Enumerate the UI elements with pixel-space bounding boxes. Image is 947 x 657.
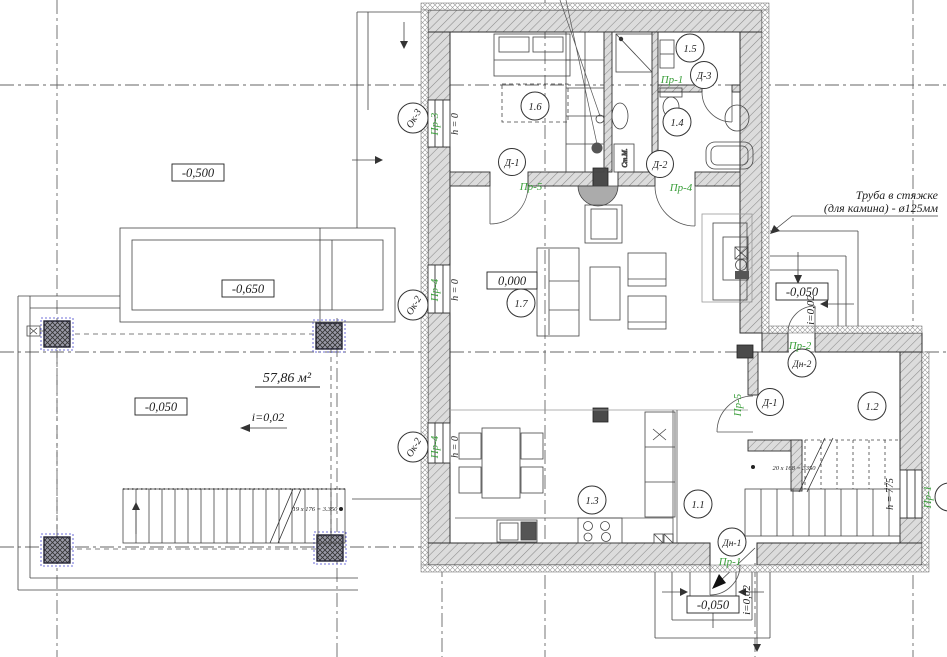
opening-tag-pr1-storage: Пр-1 [660, 74, 684, 86]
washing-machine: Ст.М. [614, 144, 634, 172]
wall-left-pier [428, 32, 450, 100]
burner [584, 533, 592, 541]
opening-tag-pr1-window-right: Пр-1 [922, 486, 934, 510]
window-tag-ok2-bottom: Ок-2 [398, 432, 428, 462]
elevation-entry-porch: -0,050 [687, 596, 739, 613]
room-tag-1-1: 1.1 [684, 490, 712, 518]
vent-shafts [593, 168, 753, 422]
washbasin [612, 103, 628, 129]
door-tag-d2-bathroom: Д-2 [647, 151, 674, 178]
tv-stand [585, 205, 622, 243]
door-number: Дн-2 [792, 360, 812, 370]
terrace-stairs-risers [136, 489, 331, 543]
burner [601, 522, 610, 531]
window-tag-ok3: Ок-3 [398, 103, 428, 133]
insulation-strip [421, 3, 769, 10]
right-porch-slope-label: i=0,02 [805, 295, 817, 325]
elevation-terrace: -0,050 [135, 398, 187, 415]
opening-tag-pr3-window-top: Пр-3 [429, 112, 441, 136]
arrow-head [240, 424, 250, 432]
window-tag-ok2-mid: Ок-2 [398, 290, 428, 320]
tall-cabinet [645, 412, 675, 517]
dining-table [482, 428, 520, 498]
stair-formula-dot [751, 465, 755, 469]
tv-inner [591, 209, 617, 239]
terrace-canopy-dashed-outline [57, 334, 331, 549]
vent-grille-diagonals [654, 534, 673, 543]
door-tag-dn2-porch: Дн-2 [788, 349, 816, 377]
insulation-strip [421, 565, 929, 572]
stair-risers-lower [761, 489, 889, 536]
cabinet-shelves [645, 447, 675, 482]
internal-stair-formula: 20 х 168 = 3350 [772, 465, 816, 472]
armchair-outline [628, 253, 666, 286]
door-tag-d3-storage: Д-3 [691, 62, 718, 89]
room-number: 1.1 [691, 500, 704, 511]
terrace-area-label: 57,86 м² [263, 371, 312, 386]
elevation-value: -0,050 [697, 598, 730, 612]
room-number: 1.2 [865, 402, 879, 413]
elevation-right-porch: -0,050 [776, 283, 828, 300]
door-swing-arc [702, 92, 732, 122]
vent-shaft [593, 168, 608, 186]
shower-tray [616, 34, 652, 72]
insulation-strip [762, 10, 769, 333]
burner [602, 533, 611, 542]
room-number: 1.5 [683, 44, 696, 55]
height-label-h775: h = 775 [885, 478, 896, 510]
iwall [604, 32, 612, 172]
room-tag-1-2: 1.2 [858, 392, 886, 420]
room-tag-1-6: 1.6 [521, 92, 549, 120]
terrace-columns [27, 318, 346, 566]
arrow-head [132, 502, 140, 510]
wall-left-pier [428, 313, 450, 423]
wall-bottom [428, 543, 710, 565]
sofa-outline [537, 248, 579, 336]
plumbing-stack-filled [592, 143, 603, 154]
iwall [658, 85, 702, 92]
ramp-outer [120, 228, 395, 322]
terrace-stairs [123, 489, 345, 543]
door-fan-corridor [578, 186, 618, 206]
window-tag-right-partial [935, 483, 947, 511]
entry-porch-slope-label: i=0,02 [741, 585, 753, 615]
internal-stairs [745, 438, 900, 536]
insulation-strip [421, 10, 428, 565]
door-number: Д-3 [696, 71, 712, 82]
opening-tag-pr2-porch: Пр-2 [788, 340, 812, 352]
chair [521, 467, 543, 493]
height-label-h0-top: h = 0 [450, 113, 461, 135]
kitchen-sink-unit [497, 520, 537, 542]
opening-tag-pr4-bathroom: Пр-4 [669, 182, 693, 194]
anchor-symbol [27, 326, 44, 336]
column [316, 323, 342, 349]
elevation-value: -0,500 [182, 166, 215, 180]
wall-right-upper [740, 32, 762, 333]
wall-porch-segment [762, 333, 788, 352]
door-number: Д-2 [652, 160, 668, 171]
terrace-slope-label: i=0,02 [252, 410, 284, 424]
opening-tag-pr5-bedroom: Пр-5 [519, 181, 543, 193]
cabinet-cross-mark [653, 429, 666, 440]
door-number: Дн-1 [722, 539, 742, 549]
window-right-wing [900, 470, 922, 518]
iwall [748, 352, 758, 395]
door-tag-d1-bedroom: Д-1 [499, 149, 526, 176]
arrow-head [680, 588, 688, 596]
sink-bowl [500, 523, 518, 540]
arrow-head [400, 41, 408, 49]
wall-wing-right [900, 352, 922, 470]
door-tag-dn1-entry: Дн-1 [718, 528, 746, 556]
elevation-floor: 0,000 [487, 272, 537, 289]
burner [584, 522, 593, 531]
room-tag-1-7: 1.7 [507, 289, 535, 317]
bed [494, 34, 570, 76]
iwall [732, 85, 740, 92]
chair [521, 433, 543, 459]
stair-flight-lower [745, 489, 900, 536]
room-tag-1-4: 1.4 [663, 108, 691, 136]
iwall [618, 172, 655, 186]
door-tag-d1-stair-room: Д-1 [757, 389, 784, 416]
sofa-lines [549, 249, 579, 335]
pillow [533, 37, 563, 52]
vent-grilles [654, 534, 673, 543]
elevation-site: -0,500 [172, 164, 224, 181]
stove [578, 518, 622, 543]
elevation-value: -0,050 [145, 400, 178, 414]
column [317, 535, 343, 561]
chair [459, 467, 481, 493]
fireplace-dark-block [735, 271, 749, 279]
ramp-inner [132, 240, 383, 310]
height-label-h0-mid: h = 0 [450, 279, 461, 301]
arrow-head [820, 300, 828, 308]
washing-machine-label: Ст.М. [621, 148, 629, 167]
door-storage [702, 92, 732, 122]
room-tag-1-3: 1.3 [578, 486, 606, 514]
stair-formula-end-dot [339, 507, 343, 511]
terrace-stair-formula: 19 х 176 = 3.350 [293, 506, 338, 513]
window-opening [900, 470, 922, 518]
iwall [695, 172, 740, 186]
insulation-strip [922, 352, 929, 565]
vent-shaft [737, 345, 753, 358]
terrace-border-lines [18, 296, 421, 590]
elevation-value: 0,000 [498, 274, 527, 288]
chimney-note-line1: Труба в стяжке [856, 188, 939, 202]
armchair [628, 253, 666, 286]
arrow-head [375, 156, 383, 164]
storage-shelf [660, 40, 674, 68]
pillow [499, 37, 529, 52]
terrace-stairs-break-line [270, 489, 301, 543]
door-number: Д-1 [762, 398, 778, 409]
insulation-strip [769, 326, 922, 333]
floor-plan-canvas: Ст.М. [0, 0, 947, 657]
ramp-dividers [320, 228, 332, 322]
room-number: 1.3 [585, 496, 598, 507]
room-tag-1-5: 1.5 [676, 34, 704, 62]
door-number: Д-1 [504, 158, 520, 169]
opening-tag-pr4-window-mid: Пр-4 [429, 278, 441, 302]
column [44, 321, 70, 347]
sink-drainer [521, 522, 536, 540]
opening-tag-pr4-window-bottom: Пр-4 [429, 435, 441, 459]
living-room-furniture [537, 205, 752, 336]
terrace [18, 296, 421, 590]
room-number: 1.6 [528, 102, 542, 113]
tv-outer [585, 205, 622, 243]
cabinet-outline [645, 412, 675, 517]
terrace-stairs-outline [123, 489, 345, 543]
column [44, 537, 70, 563]
wall-bottom [757, 543, 922, 565]
room-number: 1.4 [670, 118, 684, 129]
wall-top [428, 10, 762, 32]
shower-drain [619, 37, 623, 41]
armchair-outline [628, 296, 666, 329]
elevation-ramp: -0,650 [222, 280, 274, 297]
wall-wing-right [900, 518, 922, 543]
wall-porch-segment [815, 333, 922, 352]
chimney-note-line2: (для камина) - ø125мм [824, 201, 938, 215]
kitchen-furniture [459, 412, 675, 543]
armchair [628, 296, 666, 329]
chair [459, 433, 481, 459]
opening-tag-pr5-stair: Пр-5 [732, 393, 744, 417]
iwall [450, 172, 490, 186]
wall-left-pier [428, 147, 450, 265]
ramp-area [120, 12, 421, 322]
elevation-value: -0,650 [232, 282, 265, 296]
wall-left-pier [428, 463, 450, 543]
sofa [537, 248, 579, 336]
arrow-head [753, 644, 761, 652]
coffee-table [590, 267, 620, 320]
room-number: 1.7 [514, 299, 528, 310]
height-label-h0-bottom: h = 0 [450, 436, 461, 458]
opening-tag-pr1-entry: Пр-1 [718, 556, 742, 568]
floor-plan-page: Ст.М. [0, 0, 947, 657]
entrance-arrow-head [712, 574, 726, 589]
